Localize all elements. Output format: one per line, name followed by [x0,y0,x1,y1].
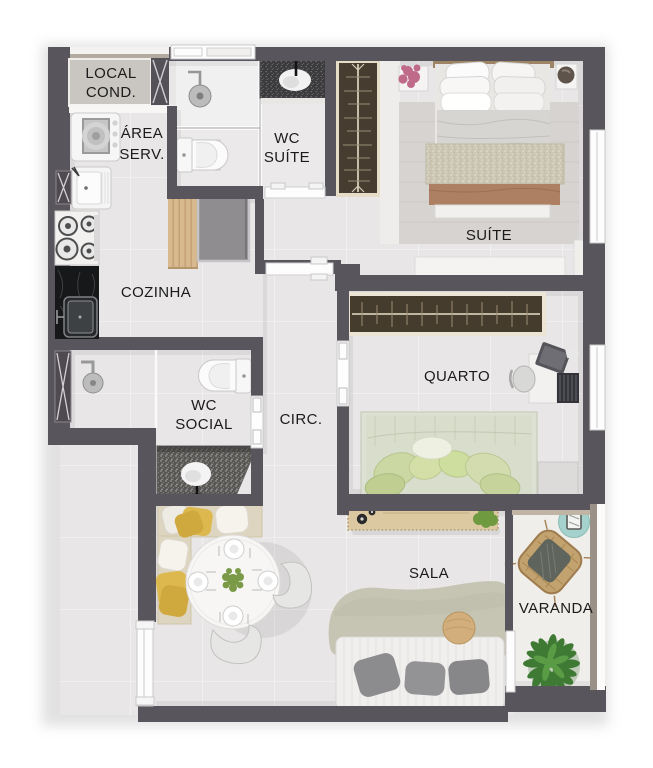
svg-text:WC: WC [191,397,217,414]
svg-text:COND.: COND. [86,84,136,101]
svg-text:SOCIAL: SOCIAL [175,416,232,433]
svg-text:VARANDA: VARANDA [519,600,593,617]
svg-text:WC: WC [274,130,300,147]
svg-text:SALA: SALA [409,565,449,582]
svg-text:ÁREA: ÁREA [121,125,163,142]
svg-text:COZINHA: COZINHA [121,284,191,301]
svg-text:LOCAL: LOCAL [85,65,136,82]
svg-text:CIRC.: CIRC. [280,411,323,428]
svg-text:SUÍTE: SUÍTE [466,227,512,244]
svg-text:SUÍTE: SUÍTE [264,149,310,166]
svg-text:QUARTO: QUARTO [424,368,490,385]
svg-text:SERV.: SERV. [119,146,164,163]
